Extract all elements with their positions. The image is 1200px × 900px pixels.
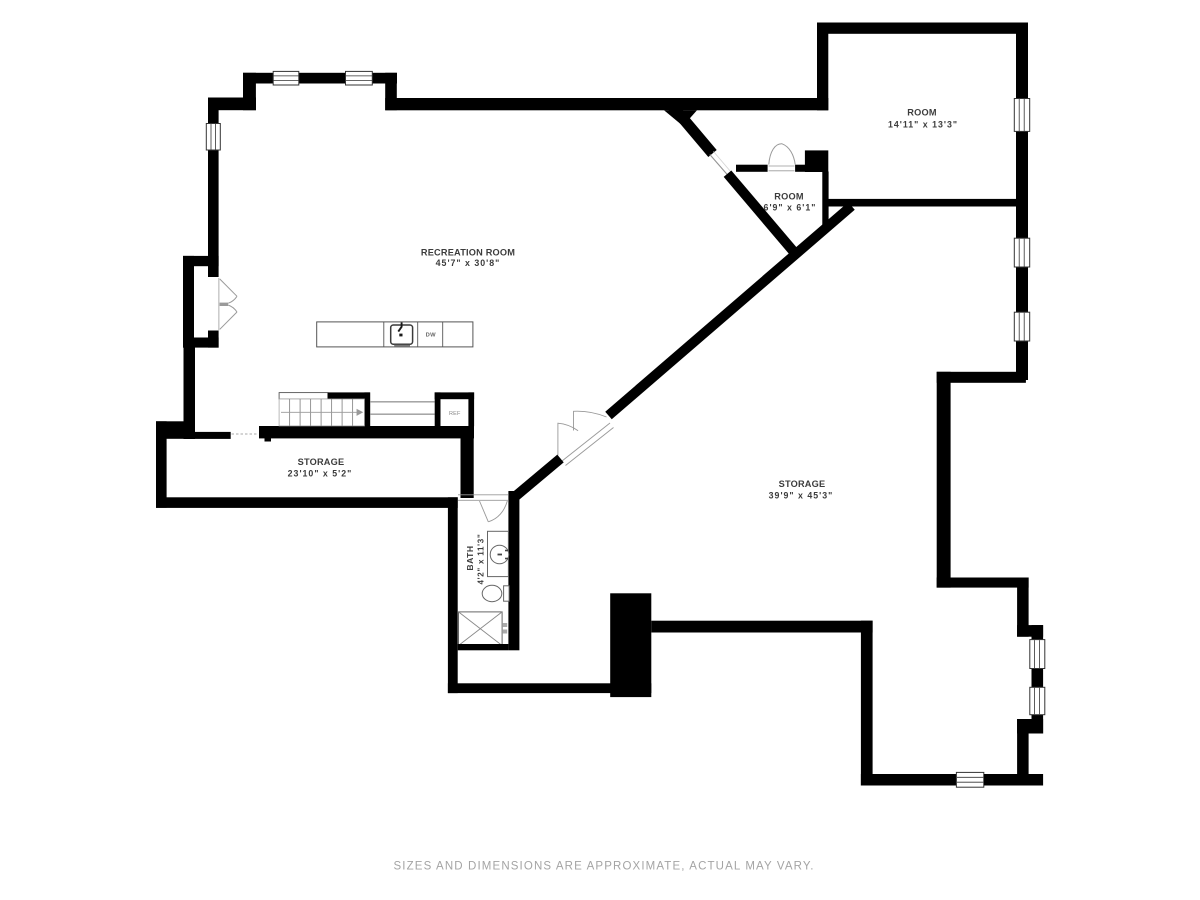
svg-text:ROOM: ROOM: [774, 192, 804, 202]
svg-text:23'10" x 5'2": 23'10" x 5'2": [288, 469, 353, 479]
svg-text:ROOM: ROOM: [907, 108, 937, 118]
svg-text:RECREATION ROOM: RECREATION ROOM: [421, 248, 515, 258]
svg-text:45'7" x 30'8": 45'7" x 30'8": [436, 258, 501, 268]
svg-text:4'2" x 11'3": 4'2" x 11'3": [477, 533, 486, 584]
svg-text:DW: DW: [426, 332, 436, 338]
svg-text:STORAGE: STORAGE: [298, 457, 345, 467]
svg-text:14'11" x 13'3": 14'11" x 13'3": [888, 120, 958, 130]
svg-text:6'9" x 6'1": 6'9" x 6'1": [764, 203, 817, 213]
svg-text:SIZES AND DIMENSIONS ARE APPRO: SIZES AND DIMENSIONS ARE APPROXIMATE, AC…: [393, 861, 814, 873]
svg-text:STORAGE: STORAGE: [779, 479, 826, 489]
svg-text:REF: REF: [449, 411, 461, 417]
svg-text:BATH: BATH: [465, 545, 475, 570]
svg-text:39'9" x 45'3": 39'9" x 45'3": [769, 491, 834, 501]
